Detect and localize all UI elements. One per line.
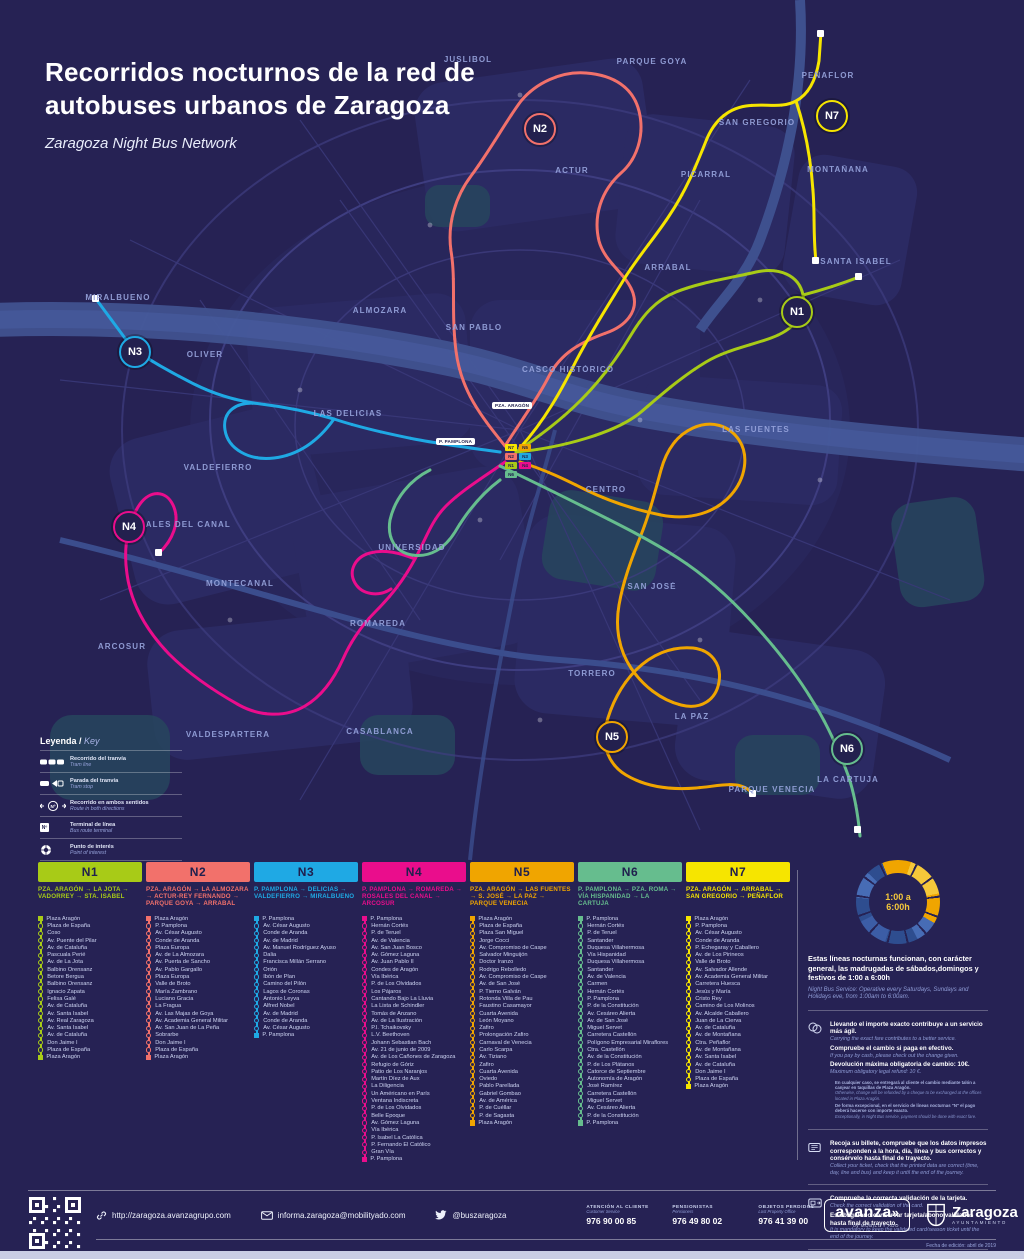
stop-name: P. de Los Plátanos [587, 1062, 634, 1068]
stop-name: Un Américano en París [371, 1091, 429, 1097]
stop-name: Autonomía de Aragón [587, 1076, 642, 1082]
stop-name: La Lista de Schindler [371, 1003, 424, 1009]
route-header-label: N4 [406, 865, 423, 879]
map-area-label: ARCOSUR [98, 642, 146, 651]
stop-marker [38, 923, 43, 928]
map-area-label: LAS FUENTES [722, 425, 790, 434]
stop-name: Av. Academia General Militar [695, 974, 768, 980]
terminal-marker [470, 1120, 475, 1125]
stop-name: Conde de Aranda [263, 1018, 307, 1024]
stop-row: Av. Santa Isabel [38, 1010, 142, 1017]
stop-marker [362, 996, 367, 1001]
legend-label-es: Recorrido del tranvía [70, 756, 126, 762]
email-link[interactable]: informa.zaragoza@mobilityado.com [261, 1211, 406, 1220]
stop-name: Plaza Aragón [46, 916, 80, 922]
stop-name: Plaza de España [155, 1047, 198, 1053]
stop-marker [578, 989, 583, 994]
stop-marker [362, 1084, 367, 1089]
route-column-n3: N3 P. PAMPLONA → DELICIAS → VALDEFIERRO … [254, 862, 358, 1163]
stop-marker [254, 974, 259, 979]
stop-name: Catorce de Septiembre [587, 1069, 646, 1075]
stop-marker [686, 982, 691, 987]
route-header-label: N6 [622, 865, 639, 879]
stop-row: Betore Bergua [38, 973, 142, 980]
stop-name: P. Pamplona [370, 916, 402, 922]
stop-marker [362, 960, 367, 965]
stop-row: P. de Teruel [362, 930, 466, 937]
route-column-n5: N5 PZA. ARAGÓN → LAS FUENTES → S. JOSÉ →… [470, 862, 574, 1163]
legend-label-en: Tram stop [70, 784, 118, 790]
stop-name: Balbino Orensanz [47, 981, 92, 987]
stop-name: P. Pamplona [262, 1032, 294, 1038]
stop-name: Av. de Cataluña [47, 1003, 87, 1009]
stop-marker [686, 974, 691, 979]
stop-name: Duquesa Villahermosa [587, 959, 644, 965]
stop-marker [254, 1018, 259, 1023]
info-line-en: Carrying the exact fare contributes to a… [830, 1036, 988, 1043]
stop-marker [254, 1004, 259, 1009]
stop-row: Cristo Rey [686, 995, 790, 1002]
stop-marker [38, 931, 43, 936]
ticket-icon [808, 1138, 830, 1177]
stop-name: Av. de Cataluña [47, 945, 87, 951]
stop-marker [470, 989, 475, 994]
stop-row: Av. de Montañana [686, 1032, 790, 1039]
stop-name: P. Echegaray y Caballero [695, 945, 759, 951]
stop-row: P. Pamplona [686, 922, 790, 929]
stop-marker [38, 974, 43, 979]
stop-marker [362, 1135, 367, 1140]
route-badge-n5: N5 [596, 721, 628, 753]
stop-marker [470, 1026, 475, 1031]
stop-name: Dalia [263, 952, 276, 958]
stop-row: Sobrarbe [146, 1032, 250, 1039]
stop-name: Plaza Aragón [478, 1120, 512, 1126]
clock-label: 1:00 a6:00h [885, 892, 911, 913]
stop-marker [146, 923, 151, 928]
stop-marker [470, 982, 475, 987]
stop-row: Patio de Los Naranjos [362, 1068, 466, 1075]
stop-name: Camino de Los Molinos [695, 1003, 754, 1009]
line-chip: N5 [519, 444, 531, 451]
line-chip: N1 [505, 462, 517, 469]
stop-row: P. Pamplona [362, 1156, 466, 1163]
stop-marker [362, 1033, 367, 1038]
terminal-marker [578, 1120, 583, 1125]
stop-name: Johann Sebastian Bach [371, 1040, 431, 1046]
stop-row: Av. de La Almozara [146, 951, 250, 958]
phone-sublabel: Pensioners [672, 1209, 738, 1214]
stop-name: P. Pamplona [586, 916, 618, 922]
stop-name: La Diligencia [371, 1083, 404, 1089]
stop-marker [686, 960, 691, 965]
email-address: informa.zaragoza@mobilityado.com [278, 1211, 406, 1220]
stop-marker [38, 1018, 43, 1023]
stop-row: Ctra. Peñaflor [686, 1039, 790, 1046]
stop-row: Un Américano en París [362, 1090, 466, 1097]
stop-marker [578, 1091, 583, 1096]
stop-row: La Diligencia [362, 1083, 466, 1090]
route-description: P. PAMPLONA → ROMAREDA → ROSALES DEL CAN… [362, 886, 466, 913]
avanza-chevrons-icon: » [892, 1205, 899, 1220]
stop-name: Av. de Cataluña [695, 1062, 735, 1068]
stop-marker [38, 967, 43, 972]
stop-row: Av. de Cataluña [38, 1032, 142, 1039]
stop-name: Av. de Los Pirineos [695, 952, 743, 958]
stop-marker [146, 931, 151, 936]
schedule-text-es: Estas líneas nocturnas funcionan, con ca… [808, 954, 988, 983]
stop-name: Alfred Nobel [263, 1003, 294, 1009]
stop-name: Hernán Cortés [587, 989, 624, 995]
edition-date: Fecha de edición: abril de 2019 [28, 1243, 996, 1249]
line-chip: N6 [505, 471, 517, 478]
stop-marker [362, 1011, 367, 1016]
coins-icon [808, 1019, 830, 1121]
stop-row: P. de Cuéllar [470, 1105, 574, 1112]
stop-name: Juan de La Cierva [695, 1018, 741, 1024]
both-directions-icon: Nº [40, 800, 70, 812]
stop-row: P. de Sagasta [470, 1112, 574, 1119]
stop-marker [470, 967, 475, 972]
stop-marker [470, 996, 475, 1001]
stop-name: Cristo Rey [695, 996, 722, 1002]
stop-row: Av. de Madrid [254, 937, 358, 944]
stop-row: Plaza Aragón [470, 915, 574, 922]
stop-marker [362, 1077, 367, 1082]
stop-row: P. de la Constitución [578, 1003, 682, 1010]
stop-name: P. de Los Olvidados [371, 1105, 421, 1111]
stop-name: Av. Santa Isabel [47, 1025, 88, 1031]
stop-name: Carretera Castellón [587, 1032, 636, 1038]
terminal-marker [362, 916, 367, 921]
stop-row: Av. de Madrid [254, 1010, 358, 1017]
stop-row: Av. de Cataluña [38, 944, 142, 951]
stop-row: María Zambrano [146, 988, 250, 995]
map-area-label: VALDEFIERRO [184, 463, 253, 472]
stop-row: Plaza de España [38, 1046, 142, 1053]
stop-marker [578, 1026, 583, 1031]
stop-name: Av. Cesáreo Alierta [587, 1105, 635, 1111]
stop-marker [38, 1011, 43, 1016]
terminal-marker [146, 916, 151, 921]
stop-marker [254, 1026, 259, 1031]
stop-name: Av. de Los Cañones de Zaragoza [371, 1054, 455, 1060]
stop-name: Plaza Aragón [694, 916, 728, 922]
route-description: PZA. ARAGÓN → LA JOTA → VADORREY → STA. … [38, 886, 142, 913]
stop-marker [578, 953, 583, 958]
fineprint-es: De forma excepcional, en el servicio de … [835, 1103, 988, 1114]
stop-row: Miguel Servet [578, 1097, 682, 1104]
stop-row: Antonio Leyva [254, 995, 358, 1002]
stop-row: Vía Ibérica [362, 973, 466, 980]
stop-name: Av. Santa Isabel [695, 1054, 736, 1060]
stop-row: P. Pamplona [578, 995, 682, 1002]
stop-marker [686, 931, 691, 936]
stop-row: P. Pamplona [146, 922, 250, 929]
route-header-n2: N2 [146, 862, 250, 882]
stop-name: Plaza Aragón [478, 916, 512, 922]
stop-row: Av. Academia General Militar [146, 1017, 250, 1024]
stop-marker [470, 1062, 475, 1067]
stop-row: Av. San Juan Bosco [362, 944, 466, 951]
stop-row: Juan de La Cierva [686, 1017, 790, 1024]
stop-row: Carretera Huesca [686, 981, 790, 988]
stop-name: Coso [47, 930, 60, 936]
stop-row: Duquesa Villahermosa [578, 944, 682, 951]
stop-row: Refugio de Góriz [362, 1061, 466, 1068]
stop-name: Plaza San Miguel [479, 930, 523, 936]
phone-blocks: ATENCIÓN AL CLIENTE Customer Service 976… [586, 1204, 824, 1226]
stop-row: Carretera Castellón [578, 1090, 682, 1097]
stop-marker [470, 1069, 475, 1074]
stop-name: Av. de Montañana [695, 1032, 741, 1038]
stop-row: Vía Ibérica [362, 1127, 466, 1134]
stop-name: Av. de la Constitución [587, 1054, 641, 1060]
map-area-label: MONTAÑANA [807, 165, 869, 174]
poster-title: Recorridos nocturnos de la red de autobu… [45, 56, 475, 122]
stop-name: P. de la Constitución [587, 1003, 638, 1009]
stop-name: Av. Alcalde Caballero [695, 1011, 749, 1017]
stop-name: P. Pamplona [262, 916, 294, 922]
stop-name: Plaza Aragón [154, 1054, 188, 1060]
stop-list: P. PamplonaHernán CortésP. de TeruelSant… [578, 915, 682, 1127]
stop-marker [470, 1011, 475, 1016]
stop-row: Plaza Aragón [686, 1083, 790, 1090]
stop-name: Av. Puerta de Sancho [155, 959, 210, 965]
stop-row: Plaza Aragón [470, 1119, 574, 1126]
stop-name: L.V. Beethoven [371, 1032, 409, 1038]
stop-name: Av. de San José [479, 981, 520, 987]
stop-marker [686, 967, 691, 972]
stop-row: P. Echegaray y Caballero [686, 944, 790, 951]
route-badge-n1: N1 [781, 296, 813, 328]
stop-marker [362, 1069, 367, 1074]
stop-marker [470, 1106, 475, 1111]
stop-row: Condes de Aragón [362, 966, 466, 973]
stop-marker [362, 923, 367, 928]
stop-name: Antonio Leyva [263, 996, 299, 1002]
stop-row: P. de Los Olvidados [362, 981, 466, 988]
stop-name: Conde de Aranda [263, 930, 307, 936]
stop-name: Carnaval de Venecia [479, 1040, 532, 1046]
stop-marker [686, 1033, 691, 1038]
stop-name: Plaza de España [47, 923, 90, 929]
stop-row: Av. César Augusto [146, 930, 250, 937]
map-area-label: CASABLANCA [346, 727, 413, 736]
route-badge-n6: N6 [831, 733, 863, 765]
stop-row: Av. de Cataluña [38, 1003, 142, 1010]
footer-contact-row: http://zaragoza.avanzagrupo.com informa.… [96, 1191, 996, 1240]
stop-name: P. Isabel La Católica [371, 1135, 422, 1141]
stop-name: Av. Compromiso de Caspe [479, 974, 546, 980]
stop-marker [686, 1069, 691, 1074]
legend-label-en: Point of interest [70, 850, 114, 856]
stop-list: Plaza AragónP. PamplonaAv. César Augusto… [686, 915, 790, 1090]
fineprint-en: Otherwise, change will be refunded by a … [835, 1090, 988, 1100]
legend-label-es: Terminal de línea [70, 822, 115, 828]
map-area-label: SANTA ISABEL [820, 257, 891, 266]
legend-label-en: Bus route terminal [70, 828, 115, 834]
stop-name: P. de la Constitución [587, 1113, 638, 1119]
stop-marker [578, 1077, 583, 1082]
stop-marker [470, 923, 475, 928]
stop-row: Pablo Parellada [470, 1083, 574, 1090]
website-link[interactable]: http://zaragoza.avanzagrupo.com [96, 1210, 231, 1221]
stop-row: Santander [578, 966, 682, 973]
stop-marker [146, 945, 151, 950]
stop-marker [470, 938, 475, 943]
route-description: PZA. ARAGÓN → ARRABAL → SAN GREGORIO → P… [686, 886, 790, 913]
stop-marker [578, 1069, 583, 1074]
info-item-exact-fare: Llevando el importe exacto contribuye a … [808, 1019, 988, 1121]
stop-name: Av. César Augusto [263, 923, 310, 929]
route-badge-n4: N4 [113, 511, 145, 543]
legend-item-terminal: Nº Terminal de línea Bus route terminal [40, 816, 182, 838]
map-area-label: MONTECANAL [206, 579, 274, 588]
stop-name: P. Pamplona [587, 996, 619, 1002]
map-area-label: MIRALBUENO [85, 293, 150, 302]
stop-row: Av. de San José [470, 981, 574, 988]
stop-name: Av. Manuel Rodríguez Ayuso [263, 945, 336, 951]
stop-row: Hernán Cortés [578, 988, 682, 995]
stop-name: Jorge Cocci [479, 938, 509, 944]
stop-name: Ventana Indiscreta [371, 1098, 418, 1104]
map-area-label: ARRABAL [644, 263, 691, 272]
stop-marker [470, 1033, 475, 1038]
stop-row: Zafiro [470, 1061, 574, 1068]
map-area-label: TORRERO [568, 669, 616, 678]
stop-marker [686, 996, 691, 1001]
stop-name: Lagos de Coronas [263, 989, 309, 995]
stop-row: Av. Manuel Rodríguez Ayuso [254, 944, 358, 951]
map-area-label: ACTUR [555, 166, 589, 175]
stop-marker [146, 1011, 151, 1016]
stop-name: Prolongación Zafiro [479, 1032, 528, 1038]
stop-row: Camino del Pilón [254, 981, 358, 988]
stop-row: Av. de Valencia [362, 937, 466, 944]
stop-marker [686, 1018, 691, 1023]
stop-marker [578, 1047, 583, 1052]
stop-name: Av. César Augusto [155, 930, 202, 936]
stop-marker [470, 945, 475, 950]
stop-row: Luciano Gracia [146, 995, 250, 1002]
stop-list: P. PamplonaAv. César AugustoConde de Ara… [254, 915, 358, 1039]
stop-marker [254, 982, 259, 987]
stop-row: Felisa Galé [38, 995, 142, 1002]
stop-marker [578, 1040, 583, 1045]
stop-marker [686, 1026, 691, 1031]
stop-marker [146, 953, 151, 958]
stop-name: Gran Vía [371, 1149, 394, 1155]
stop-name: Av. Las Majas de Goya [155, 1011, 213, 1017]
route-header-n6: N6 [578, 862, 682, 882]
tram-line-icon [40, 758, 70, 766]
stop-row: Av. Juan Pablo II [362, 959, 466, 966]
stop-marker [578, 931, 583, 936]
route-column-n7: N7 PZA. ARAGÓN → ARRABAL → SAN GREGORIO … [686, 862, 790, 1163]
stop-row: Av. Gómez Laguna [362, 951, 466, 958]
stop-name: P. de Los Olvidados [371, 981, 421, 987]
stop-name: León Moyano [479, 1018, 513, 1024]
map-area-label: PEÑAFLOR [802, 71, 855, 80]
map-area-label: SAN GREGORIO [719, 118, 795, 127]
stop-marker [146, 1018, 151, 1023]
stop-row: Don Jaime I [146, 1039, 250, 1046]
stop-name: P. Fernando El Católico [371, 1142, 430, 1148]
stop-row: Gran Vía [362, 1149, 466, 1156]
stop-row: Duquesa Villahermosa [578, 959, 682, 966]
stop-row: Av. Las Majas de Goya [146, 1010, 250, 1017]
stop-row: Plaza Aragón [686, 915, 790, 922]
stop-name: Av. de La Ilustración [371, 1018, 422, 1024]
stop-row: Av. de Cataluña [686, 1024, 790, 1031]
stop-row: Orión [254, 966, 358, 973]
route-header-n5: N5 [470, 862, 574, 882]
stop-name: Ctra. Peñaflor [695, 1040, 730, 1046]
stop-name: Tomás de Anzano [371, 1011, 416, 1017]
central-hub-line-chips: N7 N5 N2 N3 N1 N4 N6 [505, 444, 531, 478]
legend-label-en: Tram line [70, 762, 126, 768]
stop-marker [362, 1026, 367, 1031]
stop-row: Jesús y María [686, 988, 790, 995]
stop-marker [254, 989, 259, 994]
stop-marker [146, 1004, 151, 1009]
stop-row: Tomás de Anzano [362, 1010, 466, 1017]
route-badge-label: N2 [533, 123, 547, 135]
stop-name: Miguel Servet [587, 1098, 622, 1104]
stop-name: Av. de San José [587, 1018, 628, 1024]
stop-marker [470, 1098, 475, 1103]
stop-marker [470, 1113, 475, 1118]
stop-name: Av. Salvador Allende [695, 967, 747, 973]
stop-marker [470, 1084, 475, 1089]
stop-marker [578, 945, 583, 950]
hub-label-plaza-aragon: PZA. ARAGÓN [492, 402, 532, 409]
stop-marker [362, 938, 367, 943]
stop-marker [38, 945, 43, 950]
stop-row: Hernán Cortés [578, 922, 682, 929]
stop-marker [362, 945, 367, 950]
stop-marker [254, 931, 259, 936]
line-terminal-icon: Nº [40, 823, 70, 832]
twitter-link[interactable]: @buszaragoza [435, 1210, 506, 1220]
info-item-ticket: Recoja su billete, compruebe que los dat… [808, 1138, 988, 1177]
stop-marker [470, 1077, 475, 1082]
stop-marker [362, 1062, 367, 1067]
map-area-label: VALDESPARTERA [186, 730, 270, 739]
stop-name: Zafiro [479, 1062, 494, 1068]
stop-name: Plaza Europa [155, 945, 189, 951]
stop-name: P. de Teruel [371, 930, 401, 936]
avanza-logo: avanza» by MOBILITY ADO [824, 1199, 910, 1232]
route-column-n6: N6 P. PAMPLONA → PZA. ROMA → VÍA HISPANI… [578, 862, 682, 1163]
stop-marker [38, 1040, 43, 1045]
stop-marker [686, 1004, 691, 1009]
fineprint: En cualquier caso, se entregará al clien… [830, 1080, 988, 1119]
stop-row: Av. Compromiso de Caspe [470, 944, 574, 951]
stop-row: Av. de la Constitución [578, 1054, 682, 1061]
stop-name: Plaza Aragón [694, 1083, 728, 1089]
stop-list: P. PamplonaHernán CortésP. de TeruelAv. … [362, 915, 466, 1163]
map-area-label: SAN PABLO [446, 323, 502, 332]
stop-name: Ibón de Plan [263, 974, 295, 980]
stop-row: Balbino Orensanz [38, 966, 142, 973]
map-area-label: LA CARTUJA [817, 775, 879, 784]
stop-row: Hernán Cortés [362, 922, 466, 929]
stop-row: Plaza Aragón [38, 1054, 142, 1061]
stop-row: Plaza Aragón [146, 1054, 250, 1061]
route-columns: N1 PZA. ARAGÓN → LA JOTA → VADORREY → ST… [38, 862, 790, 1163]
